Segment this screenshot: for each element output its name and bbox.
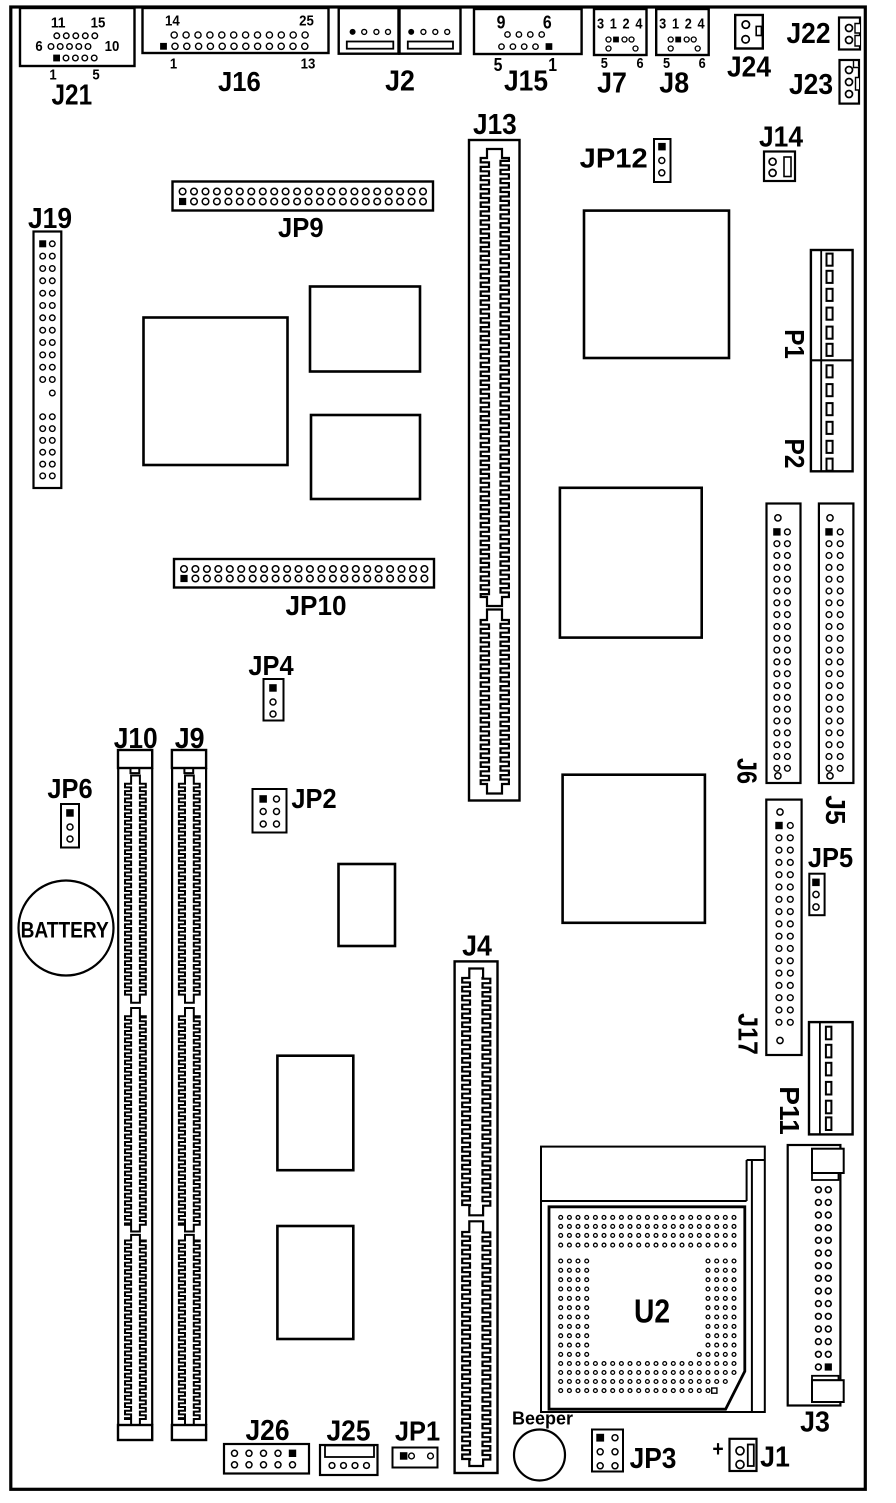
svg-text:BATTERY: BATTERY [21, 918, 109, 943]
svg-text:JP10: JP10 [286, 590, 347, 621]
svg-text:J21: J21 [52, 80, 93, 112]
svg-text:J15: J15 [504, 65, 548, 97]
svg-text:J5: J5 [820, 795, 851, 824]
svg-text:J14: J14 [759, 121, 803, 153]
svg-text:J4: J4 [462, 930, 492, 962]
svg-text:J26: J26 [246, 1415, 290, 1447]
svg-text:J6: J6 [731, 758, 762, 784]
svg-text:15: 15 [91, 15, 106, 32]
svg-text:U2: U2 [634, 1293, 670, 1330]
svg-text:4: 4 [635, 17, 642, 33]
svg-text:J17: J17 [732, 1013, 763, 1055]
svg-text:9: 9 [497, 13, 506, 33]
svg-text:1: 1 [610, 17, 617, 33]
svg-text:3: 3 [659, 17, 666, 33]
svg-text:J2: J2 [385, 65, 415, 97]
svg-text:JP4: JP4 [248, 650, 294, 681]
svg-text:JP6: JP6 [47, 773, 92, 804]
svg-text:5: 5 [494, 55, 503, 75]
svg-text:25: 25 [299, 13, 314, 30]
svg-text:+: + [712, 1436, 723, 1461]
svg-text:6: 6 [699, 56, 706, 72]
svg-text:1: 1 [170, 56, 177, 73]
svg-text:J19: J19 [28, 203, 72, 235]
svg-text:JP12: JP12 [580, 142, 648, 173]
svg-text:2: 2 [685, 17, 692, 33]
svg-text:JP3: JP3 [630, 1443, 677, 1475]
svg-text:J7: J7 [597, 67, 627, 99]
svg-text:JP9: JP9 [278, 212, 324, 243]
svg-text:J13: J13 [473, 109, 517, 141]
svg-text:6: 6 [35, 38, 42, 55]
svg-text:P1: P1 [779, 329, 810, 359]
svg-text:10: 10 [105, 38, 120, 55]
svg-text:13: 13 [301, 56, 316, 73]
svg-text:2: 2 [623, 17, 630, 33]
svg-text:J22: J22 [787, 18, 831, 50]
svg-text:P2: P2 [779, 439, 810, 469]
svg-text:5: 5 [92, 67, 99, 84]
svg-text:3: 3 [597, 17, 604, 33]
svg-text:6: 6 [636, 56, 643, 72]
svg-text:J1: J1 [760, 1441, 790, 1473]
svg-text:11: 11 [51, 15, 66, 32]
svg-text:6: 6 [543, 13, 552, 33]
svg-text:14: 14 [165, 13, 180, 30]
svg-text:1: 1 [672, 17, 679, 33]
svg-text:J25: J25 [327, 1415, 371, 1447]
svg-text:JP1: JP1 [395, 1415, 440, 1446]
svg-text:P11: P11 [774, 1086, 805, 1135]
svg-text:Beeper: Beeper [512, 1408, 573, 1429]
svg-text:J3: J3 [800, 1406, 830, 1438]
svg-text:4: 4 [698, 17, 705, 33]
svg-text:J16: J16 [218, 66, 261, 97]
svg-text:J8: J8 [659, 67, 689, 99]
svg-text:JP2: JP2 [291, 783, 336, 814]
svg-text:JP5: JP5 [808, 842, 853, 873]
svg-text:1: 1 [548, 55, 557, 75]
svg-text:J23: J23 [789, 69, 833, 101]
svg-text:J24: J24 [727, 51, 771, 83]
